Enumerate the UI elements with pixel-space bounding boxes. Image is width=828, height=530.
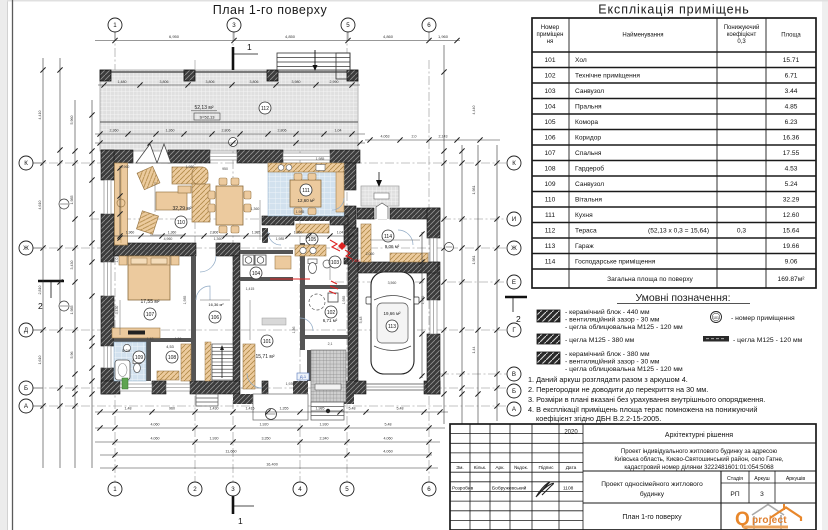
svg-text:3: 3 — [231, 486, 235, 493]
svg-text:3: 3 — [232, 22, 236, 29]
svg-text:- цегла М125 - 120 мм: - цегла М125 - 120 мм — [733, 337, 803, 344]
svg-text:Технічне приміщення: Технічне приміщення — [575, 72, 640, 80]
svg-text:4,850: 4,850 — [285, 34, 296, 39]
svg-text:Київська область, Києво-Святош: Київська область, Києво-Святошинський ра… — [614, 456, 784, 463]
svg-text:1. Даний аркуш розглядати разо: 1. Даний аркуш розглядати разом з аркушо… — [528, 375, 688, 384]
svg-text:Умовні позначення:: Умовні позначення: — [635, 292, 730, 304]
svg-text:Загальна площа по поверху: Загальна площа по поверху — [607, 276, 693, 283]
svg-text:Кільк.: Кільк. — [474, 465, 487, 471]
svg-text:1: 1 — [238, 516, 243, 526]
svg-text:Гараж: Гараж — [575, 243, 594, 250]
svg-text:114: 114 — [384, 234, 392, 240]
svg-text:4,060: 4,060 — [151, 423, 160, 427]
svg-text:4,060: 4,060 — [384, 437, 393, 441]
svg-text:Зм.: Зм. — [456, 465, 464, 471]
svg-text:52,13 м²: 52,13 м² — [194, 105, 213, 111]
svg-text:2,806: 2,806 — [278, 129, 287, 133]
svg-text:Коридор: Коридор — [575, 134, 601, 141]
svg-text:1,981: 1,981 — [472, 186, 476, 195]
svg-text:План 1-го поверху: План 1-го поверху — [213, 3, 328, 17]
svg-text:4. В експлікації приміщень пло: 4. В експлікації приміщень площа терас п… — [528, 405, 757, 414]
svg-text:1,981: 1,981 — [472, 256, 476, 265]
svg-text:2: 2 — [38, 301, 43, 311]
svg-text:105: 105 — [308, 237, 317, 243]
svg-text:1,415: 1,415 — [246, 287, 255, 291]
svg-text:- цегла облицювальна М125 -: - цегла облицювальна М125 - 120 мм — [565, 365, 683, 373]
svg-text:- цегла М125 - 380 мм: - цегла М125 - 380 мм — [565, 337, 635, 344]
svg-text:103: 103 — [331, 260, 340, 266]
svg-text:108: 108 — [544, 165, 555, 172]
svg-text:Санвузол: Санвузол — [575, 88, 604, 95]
svg-text:950: 950 — [222, 167, 228, 171]
svg-text:- вентиляційний зазор - 30: - вентиляційний зазор - 30 мм — [565, 316, 660, 324]
svg-text:1,610: 1,610 — [38, 356, 42, 365]
svg-text:3,350: 3,350 — [262, 437, 271, 441]
svg-text:17,55 м²: 17,55 м² — [140, 299, 159, 305]
svg-text:1,04: 1,04 — [335, 129, 342, 133]
svg-text:Понижуючий: Понижуючий — [724, 24, 760, 31]
svg-text:2,060: 2,060 — [366, 252, 375, 256]
svg-text:5,960: 5,960 — [70, 116, 74, 125]
svg-text:Проект індивідуального житлово: Проект індивідуального житлового будинку… — [621, 448, 778, 455]
svg-text:Площа: Площа — [781, 33, 801, 39]
svg-text:19.66: 19.66 — [783, 243, 800, 250]
svg-text:101: 101 — [263, 339, 272, 345]
svg-text:Стадія: Стадія — [727, 476, 743, 482]
svg-text:Аркуш: Аркуш — [754, 476, 769, 482]
svg-text:1,480: 1,480 — [118, 80, 127, 84]
svg-text:1108: 1108 — [563, 486, 574, 492]
svg-text:16,400: 16,400 — [266, 463, 278, 467]
svg-text:3. Розміри в плані вказані без: 3. Розміри в плані вказані без урахуванн… — [528, 395, 765, 404]
svg-text:1: 1 — [113, 22, 117, 29]
svg-text:Вітальня: Вітальня — [575, 195, 602, 203]
svg-text:2,990: 2,990 — [330, 80, 339, 84]
svg-text:Арк.: Арк. — [495, 465, 504, 471]
svg-text:- номер приміщення: - номер приміщення — [731, 314, 795, 322]
svg-text:3,806: 3,806 — [250, 80, 259, 84]
svg-text:113: 113 — [388, 324, 396, 330]
svg-text:Аркушів: Аркушів — [786, 476, 806, 482]
svg-text:15.71: 15.71 — [783, 57, 800, 64]
svg-text:1,980: 1,980 — [141, 249, 150, 253]
svg-text:3: 3 — [760, 491, 764, 498]
svg-text:3,806: 3,806 — [206, 80, 215, 84]
svg-text:Тераса: Тераса — [575, 227, 597, 234]
svg-text:коефіцієнт згідно ДБН В.2.2-15: коефіцієнт згідно ДБН В.2.2-15-2005. — [536, 414, 661, 423]
svg-text:1,985: 1,985 — [342, 296, 346, 305]
svg-text:1,44: 1,44 — [472, 347, 476, 354]
svg-text:1,985: 1,985 — [252, 231, 261, 235]
svg-text:4,060: 4,060 — [151, 437, 160, 441]
svg-text:111: 111 — [302, 188, 310, 194]
svg-text:1,360: 1,360 — [168, 231, 177, 235]
svg-text:Розробив: Розробив — [452, 486, 474, 492]
svg-text:4,860: 4,860 — [383, 34, 394, 39]
svg-text:101: 101 — [544, 57, 555, 64]
svg-text:16.36: 16.36 — [783, 134, 800, 141]
svg-text:102: 102 — [544, 73, 555, 80]
svg-text:1,48: 1,48 — [147, 337, 154, 341]
svg-text:19,66 м²: 19,66 м² — [383, 311, 401, 316]
svg-text:5: 5 — [345, 486, 349, 493]
svg-text:12,60 м²: 12,60 м² — [297, 198, 315, 203]
svg-text:4.53: 4.53 — [785, 165, 798, 172]
svg-text:11,660: 11,660 — [225, 450, 236, 454]
svg-text:2,340: 2,340 — [320, 437, 329, 441]
svg-text:Ж: Ж — [23, 245, 29, 252]
svg-text:1: 1 — [113, 486, 117, 493]
svg-text:3,430: 3,430 — [70, 261, 74, 270]
svg-text:1,985: 1,985 — [316, 157, 325, 161]
svg-text:1,360: 1,360 — [214, 237, 223, 241]
svg-text:Найменування: Найменування — [622, 32, 663, 39]
svg-text:2,143: 2,143 — [439, 135, 448, 139]
svg-text:15,71 м²: 15,71 м² — [255, 354, 274, 360]
svg-text:4,440: 4,440 — [472, 106, 476, 115]
svg-text:4,53: 4,53 — [166, 345, 173, 349]
svg-text:5,24: 5,24 — [122, 349, 129, 353]
svg-text:105: 105 — [544, 119, 555, 126]
svg-text:4,960: 4,960 — [164, 237, 173, 241]
svg-text:Проект односімейного житлового: Проект односімейного житлового — [601, 480, 703, 488]
svg-text:1,985: 1,985 — [183, 296, 187, 305]
svg-text:Господарське приміщення: Господарське приміщення — [575, 257, 656, 265]
svg-text:6.71: 6.71 — [785, 73, 798, 80]
svg-text:4,063: 4,063 — [381, 135, 390, 139]
svg-text:6,950: 6,950 — [169, 34, 180, 39]
svg-text:5,48: 5,48 — [349, 407, 356, 411]
svg-text:Ж: Ж — [511, 245, 517, 252]
svg-text:1,0: 1,0 — [237, 328, 241, 333]
svg-text:17.55: 17.55 — [783, 150, 800, 157]
svg-text:110: 110 — [545, 196, 556, 203]
svg-text:И: И — [512, 216, 516, 223]
svg-text:5,48: 5,48 — [397, 407, 404, 411]
svg-text:2,0: 2,0 — [412, 135, 417, 139]
svg-text:9.06: 9.06 — [785, 258, 798, 265]
svg-text:1,36: 1,36 — [175, 337, 182, 341]
svg-text:1,980: 1,980 — [186, 165, 195, 169]
svg-text:2: 2 — [516, 314, 521, 324]
svg-text:169.87м²: 169.87м² — [778, 276, 806, 283]
svg-text:2: 2 — [193, 486, 197, 493]
svg-text:Санвузол: Санвузол — [575, 181, 604, 188]
svg-text:0,3: 0,3 — [737, 39, 746, 45]
svg-text:109: 109 — [135, 355, 144, 361]
svg-text:6: 6 — [427, 22, 431, 29]
svg-text:113: 113 — [545, 243, 556, 250]
svg-text:102: 102 — [327, 310, 336, 316]
svg-text:1,415: 1,415 — [246, 407, 255, 411]
svg-text:114: 114 — [545, 258, 556, 265]
svg-text:960: 960 — [169, 407, 175, 411]
svg-text:15.64: 15.64 — [783, 227, 800, 234]
svg-text:Б: Б — [512, 388, 516, 395]
svg-text:106: 106 — [544, 134, 555, 141]
svg-text:16,36 м²: 16,36 м² — [208, 302, 224, 307]
svg-text:1,48: 1,48 — [125, 407, 132, 411]
svg-text:1,985: 1,985 — [316, 407, 325, 411]
svg-text:4: 4 — [298, 486, 302, 493]
svg-text:107: 107 — [544, 150, 555, 157]
svg-text:1,360: 1,360 — [166, 129, 175, 133]
svg-text:6: 6 — [427, 486, 431, 493]
svg-text:№док.: №док. — [514, 465, 528, 471]
svg-text:В: В — [512, 371, 516, 378]
svg-text:6,71 м²: 6,71 м² — [323, 318, 338, 323]
svg-text:3,806: 3,806 — [160, 80, 169, 84]
svg-text:2. Перегородки не доводити до: 2. Перегородки не доводити до перекриття… — [528, 385, 708, 394]
svg-text:Архітектурні рішення: Архітектурні рішення — [665, 431, 733, 439]
svg-text:ПВХ: ПВХ — [352, 258, 360, 263]
svg-text:32.29: 32.29 — [783, 196, 800, 203]
svg-text:1,360: 1,360 — [251, 207, 260, 211]
svg-text:1,930: 1,930 — [286, 382, 295, 386]
svg-text:2,806: 2,806 — [210, 231, 219, 235]
svg-text:Б: Б — [24, 385, 28, 392]
svg-text:Е: Е — [512, 279, 516, 286]
svg-text:5: 5 — [346, 22, 350, 29]
svg-text:5.24: 5.24 — [785, 181, 798, 188]
svg-text:1,985: 1,985 — [421, 296, 425, 305]
svg-text:приміщен: приміщен — [537, 32, 564, 38]
svg-text:5,48: 5,48 — [385, 423, 392, 427]
svg-text:- керамічний блок - 440 мм: - керамічний блок - 440 мм — [565, 308, 650, 316]
svg-text:Комора: Комора — [575, 119, 598, 126]
svg-text:3.44: 3.44 — [785, 88, 798, 95]
svg-text:1,0: 1,0 — [115, 258, 119, 263]
svg-text:1,985: 1,985 — [70, 196, 74, 205]
svg-text:РП: РП — [730, 491, 739, 498]
svg-text:104: 104 — [544, 104, 555, 111]
svg-text:1,04: 1,04 — [337, 231, 344, 235]
svg-text:1: 1 — [247, 42, 252, 52]
svg-text:1,960: 1,960 — [126, 231, 135, 235]
svg-text:9,06 м²: 9,06 м² — [385, 244, 400, 249]
svg-text:К: К — [24, 160, 28, 167]
svg-text:Хол: Хол — [575, 57, 587, 64]
svg-text:Підпис: Підпис — [539, 465, 555, 471]
svg-text:Кухня: Кухня — [575, 212, 593, 219]
svg-text:2,806: 2,806 — [222, 129, 231, 133]
svg-text:109: 109 — [544, 181, 555, 188]
svg-text:2,1: 2,1 — [328, 342, 333, 346]
svg-text:2,806: 2,806 — [266, 157, 275, 161]
svg-text:4,060: 4,060 — [383, 450, 393, 454]
svg-text:1,355: 1,355 — [280, 407, 289, 411]
svg-text:0,3: 0,3 — [737, 227, 746, 234]
svg-text:project: project — [752, 515, 787, 526]
svg-text:- цегла облицювальна М125 -: - цегла облицювальна М125 - 120 мм — [565, 323, 683, 331]
svg-text:101: 101 — [713, 316, 719, 320]
svg-text:Спальня: Спальня — [575, 150, 602, 157]
svg-text:112: 112 — [545, 227, 556, 234]
svg-text:коефіцієнт: коефіцієнт — [727, 32, 757, 38]
svg-text:4,410: 4,410 — [38, 111, 42, 120]
svg-text:3,430: 3,430 — [115, 306, 119, 315]
svg-text:4,610: 4,610 — [38, 201, 42, 210]
svg-text:S=52,13: S=52,13 — [199, 115, 215, 120]
svg-text:1,960: 1,960 — [438, 34, 449, 39]
svg-text:108: 108 — [168, 355, 177, 361]
svg-text:- керамічний блок - 380 мм: - керамічний блок - 380 мм — [565, 350, 650, 358]
svg-text:1,985: 1,985 — [70, 306, 74, 315]
svg-text:32,29 м²: 32,29 м² — [172, 206, 191, 212]
svg-text:103: 103 — [544, 88, 555, 95]
svg-text:106: 106 — [211, 315, 220, 321]
svg-text:Дата: Дата — [566, 465, 577, 471]
svg-text:1,930: 1,930 — [320, 423, 329, 427]
svg-text:1,985: 1,985 — [276, 237, 285, 241]
svg-text:ня: ня — [547, 39, 554, 45]
svg-text:3,560: 3,560 — [388, 281, 397, 285]
svg-text:Пральня: Пральня — [575, 104, 602, 111]
svg-text:- вентиляційний зазор - 30: - вентиляційний зазор - 30 мм — [565, 358, 660, 366]
svg-text:1,930: 1,930 — [210, 437, 219, 441]
svg-text:кадастровий номер ділянки 3222: кадастровий номер ділянки 3222481601:01:… — [624, 464, 774, 471]
svg-text:3,980: 3,980 — [292, 80, 301, 84]
svg-text:5,48: 5,48 — [359, 317, 363, 324]
svg-text:960: 960 — [197, 382, 203, 386]
svg-text:110: 110 — [177, 220, 185, 226]
svg-text:4.85: 4.85 — [785, 104, 798, 111]
svg-text:4,960: 4,960 — [121, 165, 130, 169]
svg-text:Гардероб: Гардероб — [575, 164, 604, 172]
svg-text:111: 111 — [545, 212, 555, 219]
svg-text:1,430: 1,430 — [210, 407, 219, 411]
svg-text:104: 104 — [252, 271, 261, 277]
svg-text:2,360: 2,360 — [110, 129, 119, 133]
svg-text:(52,13 х 0,3 = 15,64): (52,13 х 0,3 = 15,64) — [648, 227, 709, 234]
svg-text:1,360: 1,360 — [294, 231, 303, 235]
svg-text:1,36: 1,36 — [292, 327, 296, 334]
svg-text:107: 107 — [146, 312, 155, 318]
svg-text:2020: 2020 — [564, 430, 578, 436]
svg-text:Д-1: Д-1 — [300, 374, 307, 379]
svg-text:12.60: 12.60 — [783, 212, 800, 219]
svg-text:Бобружевський: Бобружевський — [492, 485, 527, 492]
svg-text:К: К — [512, 160, 516, 167]
svg-text:5,96: 5,96 — [70, 352, 74, 359]
svg-text:6.23: 6.23 — [785, 119, 798, 126]
svg-text:112: 112 — [261, 106, 269, 112]
svg-text:План 1-го поверху: План 1-го поверху — [622, 514, 682, 521]
svg-text:1,985: 1,985 — [296, 210, 305, 214]
svg-text:Експлікація приміщень: Експлікація приміщень — [598, 3, 749, 17]
svg-text:1,920: 1,920 — [260, 423, 269, 427]
svg-text:будинку: будинку — [640, 490, 665, 498]
svg-text:Номер: Номер — [541, 25, 560, 31]
svg-text:2,810: 2,810 — [38, 286, 42, 295]
